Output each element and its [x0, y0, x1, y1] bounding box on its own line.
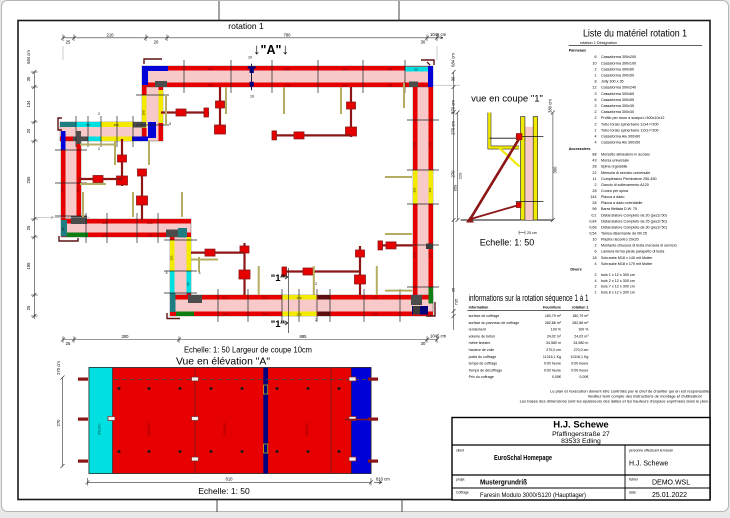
svg-text:7: 7 [51, 216, 53, 220]
svg-text:25: 25 [66, 341, 71, 346]
svg-text:240x300: 240x300 [147, 422, 151, 435]
svg-text:Schraube M18 x 140 mit Mutter: Schraube M18 x 140 mit Mutter [601, 256, 653, 260]
svg-text:Mustergrundriß: Mustergrundriß [480, 480, 528, 487]
svg-text:20: 20 [154, 40, 159, 45]
svg-text:11316,1 Kg: 11316,1 Kg [543, 355, 561, 359]
svg-text:0,00€: 0,00€ [552, 375, 561, 379]
svg-text:300: 300 [553, 166, 558, 174]
svg-text:Profilo per muro a scarpa l=30: Profilo per muro a scarpa l=300x10x12 [601, 116, 664, 120]
svg-text:poids du coffrage: poids du coffrage [469, 355, 497, 359]
svg-text:Cuneo per spina: Cuneo per spina [601, 189, 629, 193]
svg-text:34,580 m: 34,580 m [546, 341, 561, 345]
svg-text:2: 2 [594, 244, 596, 248]
svg-text:2: 2 [594, 183, 596, 187]
svg-text:240: 240 [387, 84, 393, 88]
svg-text:30: 30 [451, 76, 456, 81]
svg-text:Cassaforma 300x35: Cassaforma 300x35 [601, 104, 634, 108]
svg-text:DEMO.WSL: DEMO.WSL [652, 480, 690, 487]
svg-text:240: 240 [76, 187, 80, 193]
svg-text:Schraube M18 x 170 mit Mutter: Schraube M18 x 170 mit Mutter [601, 262, 653, 266]
svg-text:270 cm: 270 cm [56, 361, 61, 375]
svg-text:240: 240 [222, 313, 228, 317]
svg-text:282,86 m²: 282,86 m² [545, 321, 562, 325]
svg-text:Tubo forato spinerbarre 12x3 l: Tubo forato spinerbarre 12x3 l=300 [601, 128, 659, 132]
svg-text:Cassaforma Alu 300x50: Cassaforma Alu 300x50 [601, 141, 640, 145]
svg-text:Pfaffingerstraße 27: Pfaffingerstraße 27 [552, 431, 610, 438]
svg-text:Spina regolabile: Spina regolabile [601, 165, 627, 169]
svg-text:180,79 m²: 180,79 m² [572, 314, 589, 318]
svg-text:4: 4 [594, 279, 596, 283]
svg-text:34,580 m: 34,580 m [573, 341, 588, 345]
svg-text:Cassaforma 300x240: Cassaforma 300x240 [601, 86, 636, 90]
svg-text:240: 240 [428, 142, 432, 148]
svg-text:240: 240 [262, 296, 268, 300]
svg-text:780: 780 [284, 32, 292, 37]
svg-text:30: 30 [421, 341, 426, 346]
svg-text:0:00 heure: 0:00 heure [544, 368, 561, 372]
svg-text:270: 270 [56, 419, 61, 427]
svg-text:2: 2 [315, 282, 317, 286]
svg-text:30: 30 [421, 40, 426, 45]
svg-text:Jolly 300 x 35: Jolly 300 x 35 [601, 80, 624, 84]
svg-text:240: 240 [342, 68, 348, 72]
svg-text:10: 10 [250, 95, 254, 99]
svg-text:"1": "1" [271, 319, 285, 330]
svg-text:255: 255 [26, 176, 31, 184]
svg-text:Cassaforma 300x100: Cassaforma 300x100 [601, 61, 636, 65]
svg-text:96: 96 [592, 207, 596, 211]
svg-text:270 cm: 270 cm [451, 100, 456, 114]
svg-text:240: 240 [61, 187, 65, 193]
svg-text:3: 3 [594, 92, 596, 96]
svg-text:Cassaforma 300x50: Cassaforma 300x50 [601, 74, 634, 78]
svg-text:2: 2 [594, 110, 596, 114]
svg-text:Placca a dado: Placca a dado [601, 195, 624, 199]
svg-text:300: 300 [413, 187, 417, 192]
svg-text:24,02 m³: 24,02 m³ [547, 334, 562, 338]
svg-text:4: 4 [594, 141, 596, 145]
svg-text:24,02 m³: 24,02 m³ [574, 334, 589, 338]
svg-text:Complessivo Piombatore 250-450: Complessivo Piombatore 250-450 [601, 177, 657, 181]
svg-text:bois 1 x 12 x 300 cm: bois 1 x 12 x 300 cm [601, 273, 635, 277]
svg-text:surface de coffrage: surface de coffrage [469, 314, 500, 318]
svg-text:885: 885 [300, 334, 308, 339]
svg-text:0,54: 0,54 [589, 232, 596, 236]
svg-text:Tubo forato spinerbarre 12x4 l: Tubo forato spinerbarre 12x4 l=300 [601, 122, 659, 126]
svg-text:0,84: 0,84 [589, 219, 596, 223]
svg-text:12: 12 [592, 86, 596, 90]
svg-text:Echelle: 1: 50 Largeur de co: Echelle: 1: 50 Largeur de coupe 10cm [184, 346, 312, 355]
svg-text:200: 200 [102, 221, 108, 225]
svg-text:240: 240 [207, 68, 213, 72]
svg-text:20: 20 [26, 128, 31, 133]
svg-text:195: 195 [26, 262, 31, 270]
svg-text:735: 735 [454, 298, 459, 305]
svg-text:Liste du matériel rotation 1: Liste du matériel rotation 1 [583, 29, 687, 40]
svg-text:240: 240 [284, 68, 290, 72]
svg-text:rotation 1 Désignation: rotation 1 Désignation [580, 41, 617, 45]
svg-text:information: information [469, 306, 489, 310]
svg-text:H.J. Schewe: H.J. Schewe [629, 461, 668, 468]
svg-text:Faresin Modulo 3000/S120 (Haup: Faresin Modulo 3000/S120 (Hauptlager) [480, 492, 586, 499]
svg-text:144: 144 [590, 195, 596, 199]
svg-text:11: 11 [593, 177, 597, 181]
svg-text:30: 30 [26, 76, 31, 81]
svg-text:Cassaforma 300x60: Cassaforma 300x60 [601, 67, 634, 71]
svg-text:Tanica disarmante da litri 25: Tanica disarmante da litri 25 [601, 232, 647, 236]
svg-text:EuroSchal Homepage: EuroSchal Homepage [494, 455, 552, 462]
svg-text:1: 1 [594, 74, 596, 78]
svg-text:203x300: 203x300 [223, 422, 227, 435]
svg-text:Cassaforma 300x30: Cassaforma 300x30 [601, 110, 634, 114]
svg-text:10: 10 [592, 238, 596, 242]
svg-text:"1": "1" [271, 273, 285, 284]
svg-text:2: 2 [594, 116, 596, 120]
svg-text:mètre linéaire: mètre linéaire [469, 341, 491, 345]
svg-text:Distanziatore Completo da 20 (: Distanziatore Completo da 20 (pezzi 50) [601, 213, 667, 217]
svg-text:rotation 1: rotation 1 [228, 21, 264, 31]
svg-text:240: 240 [222, 296, 228, 300]
svg-text:25: 25 [451, 287, 456, 292]
svg-text:Vue en élévation "A": Vue en élévation "A" [176, 356, 270, 368]
svg-text:240: 240 [262, 313, 268, 317]
svg-text:200: 200 [147, 221, 153, 225]
svg-text:vue en coupe "1": vue en coupe "1" [471, 94, 543, 105]
svg-text:25: 25 [26, 305, 31, 310]
svg-text:282,86 m²: 282,86 m² [572, 321, 589, 325]
svg-text:240: 240 [372, 313, 378, 317]
svg-text:Prix du coffrage: Prix du coffrage [469, 375, 494, 379]
svg-text:2: 2 [98, 147, 100, 151]
svg-text:25.01.2022: 25.01.2022 [652, 492, 687, 499]
svg-text:Montante chiusura di testa men: Montante chiusura di testa mensola di se… [601, 244, 677, 248]
svg-text:2: 2 [98, 112, 100, 116]
svg-text:83533 Edling: 83533 Edling [561, 438, 601, 445]
svg-text:Echelle: 1: 50: Echelle: 1: 50 [198, 486, 250, 496]
svg-text:134: 134 [26, 100, 31, 108]
svg-text:28: 28 [592, 189, 596, 193]
svg-text:Morsetto allineatore in acciai: Morsetto allineatore in acciaio [601, 153, 650, 157]
svg-text:Barra filettata D.W. 75: Barra filettata D.W. 75 [601, 207, 637, 211]
svg-text:4: 4 [594, 135, 596, 139]
svg-text:6: 6 [594, 250, 596, 254]
svg-text:0,68: 0,68 [589, 225, 596, 229]
svg-text:informations sur la rotation: informations sur la rotation séquence 1 … [469, 293, 589, 303]
svg-text:Placca a dado orientabile: Placca a dado orientabile [601, 201, 642, 205]
svg-text:28: 28 [592, 201, 596, 205]
svg-text:date:: date: [629, 491, 637, 495]
svg-text:810: 810 [226, 477, 234, 482]
svg-text:270,0 cm: 270,0 cm [574, 348, 589, 352]
svg-text:Mensola di servizio universale: Mensola di servizio universale [601, 171, 650, 175]
svg-text:4: 4 [198, 271, 200, 275]
svg-text:270 cm: 270 cm [451, 121, 456, 135]
svg-text:240: 240 [387, 68, 393, 72]
svg-text:240: 240 [284, 84, 290, 88]
svg-text:0,2: 0,2 [591, 213, 596, 217]
svg-text:8: 8 [594, 80, 596, 84]
svg-text:684 cm: 684 cm [451, 53, 456, 67]
svg-text:5: 5 [169, 122, 171, 126]
svg-text:90: 90 [61, 227, 65, 231]
svg-text:2: 2 [594, 285, 596, 289]
svg-text:Echelle: 1: 50: Echelle: 1: 50 [480, 238, 535, 248]
svg-text:2: 2 [594, 273, 596, 277]
svg-text:fichier: fichier [629, 478, 639, 482]
svg-text:Morsa universale: Morsa universale [601, 159, 629, 163]
svg-text:Les bases des dimensions sont: Les bases des dimensions sont les épaiss… [520, 399, 709, 404]
svg-text:270: 270 [451, 170, 456, 178]
svg-text:Distanziatore Completo da 25 (: Distanziatore Completo da 25 (pezzi 50) [601, 219, 667, 223]
svg-text:240: 240 [428, 252, 432, 258]
svg-text:rotation 1: rotation 1 [572, 306, 588, 310]
svg-text:25 cm: 25 cm [527, 231, 537, 235]
svg-text:659: 659 [453, 184, 458, 191]
svg-text:240: 240 [372, 296, 378, 300]
svg-text:projet: projet [456, 478, 465, 482]
svg-text:Panneaux: Panneaux [569, 49, 587, 53]
svg-text:bois 8 x 12 x 300 cm: bois 8 x 12 x 300 cm [601, 291, 635, 295]
svg-text:10: 10 [248, 56, 252, 60]
svg-text:bois 7 x 12 x 300 cm: bois 7 x 12 x 300 cm [601, 285, 635, 289]
svg-text:2: 2 [594, 104, 596, 108]
svg-text:volume de béton: volume de béton [469, 334, 496, 338]
svg-text:surface du panneau de coffrage: surface du panneau de coffrage [469, 321, 520, 325]
svg-text:client: client [456, 449, 464, 453]
svg-text:2: 2 [594, 67, 596, 71]
svg-text:380 cm: 380 cm [548, 99, 553, 113]
svg-text:6: 6 [594, 55, 596, 59]
svg-text:personne effectuant le travail: personne effectuant le travail [629, 449, 673, 453]
svg-text:80: 80 [186, 282, 190, 286]
svg-text:220: 220 [458, 172, 463, 179]
svg-text:Gancio di sollevamento A120: Gancio di sollevamento A120 [601, 183, 649, 187]
svg-text:11316,1 Kg: 11316,1 Kg [570, 355, 588, 359]
svg-text:100 %: 100 % [551, 328, 562, 332]
svg-text:684 cm: 684 cm [26, 50, 31, 64]
svg-text:240: 240 [342, 84, 348, 88]
svg-text:100: 100 [170, 255, 174, 260]
svg-text:Coffrage: Coffrage [456, 491, 469, 495]
svg-text:100 %: 100 % [578, 328, 589, 332]
svg-text:270,0 cm: 270,0 cm [546, 348, 561, 352]
svg-text:18: 18 [592, 256, 596, 260]
svg-text:temps de coffrage: temps de coffrage [469, 362, 498, 366]
svg-text:0:00 heure: 0:00 heure [544, 362, 561, 366]
svg-text:88: 88 [592, 153, 596, 157]
svg-text:0:00 heure: 0:00 heure [571, 368, 588, 372]
svg-text:Accessoires: Accessoires [569, 147, 591, 151]
svg-text:bois 2 x 12 x 300 cm: bois 2 x 12 x 300 cm [601, 279, 635, 283]
svg-text:Lamiera ferma piede parapetto: Lamiera ferma piede parapetto di testa [601, 250, 665, 254]
svg-text:0,00€: 0,00€ [579, 375, 588, 379]
svg-text:240x300: 240x300 [305, 422, 309, 435]
svg-text:100: 100 [142, 110, 146, 115]
svg-text:180,79 m²: 180,79 m² [545, 314, 562, 318]
svg-text:↓"A"↓: ↓"A"↓ [253, 41, 289, 58]
svg-text:65x300: 65x300 [98, 423, 102, 434]
svg-text:100: 100 [113, 123, 118, 127]
svg-text:Cassaforma 300x55: Cassaforma 300x55 [601, 98, 634, 102]
svg-text:25: 25 [26, 225, 31, 230]
svg-text:300: 300 [122, 334, 130, 339]
svg-text:Cassaforma 300x65: Cassaforma 300x65 [601, 92, 634, 96]
svg-text:10: 10 [592, 61, 596, 65]
svg-text:Divers: Divers [570, 267, 581, 271]
svg-text:hauteur de voile: hauteur de voile [469, 348, 495, 352]
svg-text:210: 210 [107, 32, 115, 37]
svg-text:4: 4 [594, 262, 596, 266]
svg-text:rendement: rendement [469, 328, 486, 332]
svg-text:22: 22 [592, 171, 596, 175]
svg-text:1045 cm: 1045 cm [430, 32, 447, 37]
svg-text:1: 1 [594, 128, 596, 132]
svg-text:Cassaforma 300x200: Cassaforma 300x200 [601, 55, 636, 59]
svg-text:25: 25 [66, 40, 71, 45]
svg-text:200: 200 [102, 234, 108, 238]
svg-text:28: 28 [592, 165, 596, 169]
svg-text:2: 2 [594, 122, 596, 126]
svg-text:Cassaforma Alu 300x60: Cassaforma Alu 300x60 [601, 135, 640, 139]
svg-text:1: 1 [594, 291, 596, 295]
svg-text:300: 300 [428, 187, 432, 192]
svg-text:1045 cm: 1045 cm [430, 334, 447, 339]
svg-text:240: 240 [207, 84, 213, 88]
svg-text:Piastra riscontro 20x20: Piastra riscontro 20x20 [601, 238, 639, 242]
svg-text:Temps de décoffrage: Temps de décoffrage [469, 368, 503, 372]
svg-text:240: 240 [413, 142, 417, 148]
svg-text:Distanziatore Completo da 30 (: Distanziatore Completo da 30 (pezzi 50) [601, 225, 667, 229]
svg-text:810 cm: 810 cm [376, 476, 390, 481]
svg-text:H.J. Schewe: H.J. Schewe [553, 420, 608, 431]
svg-text:0:00 heure: 0:00 heure [571, 362, 588, 366]
svg-text:6: 6 [594, 98, 596, 102]
svg-text:Fourniture: Fourniture [543, 306, 561, 310]
svg-text:4: 4 [165, 271, 167, 275]
svg-text:60: 60 [414, 68, 418, 72]
svg-text:240: 240 [413, 252, 417, 258]
svg-text:2: 2 [315, 318, 317, 322]
svg-text:43: 43 [592, 159, 596, 163]
svg-text:200: 200 [147, 234, 153, 238]
